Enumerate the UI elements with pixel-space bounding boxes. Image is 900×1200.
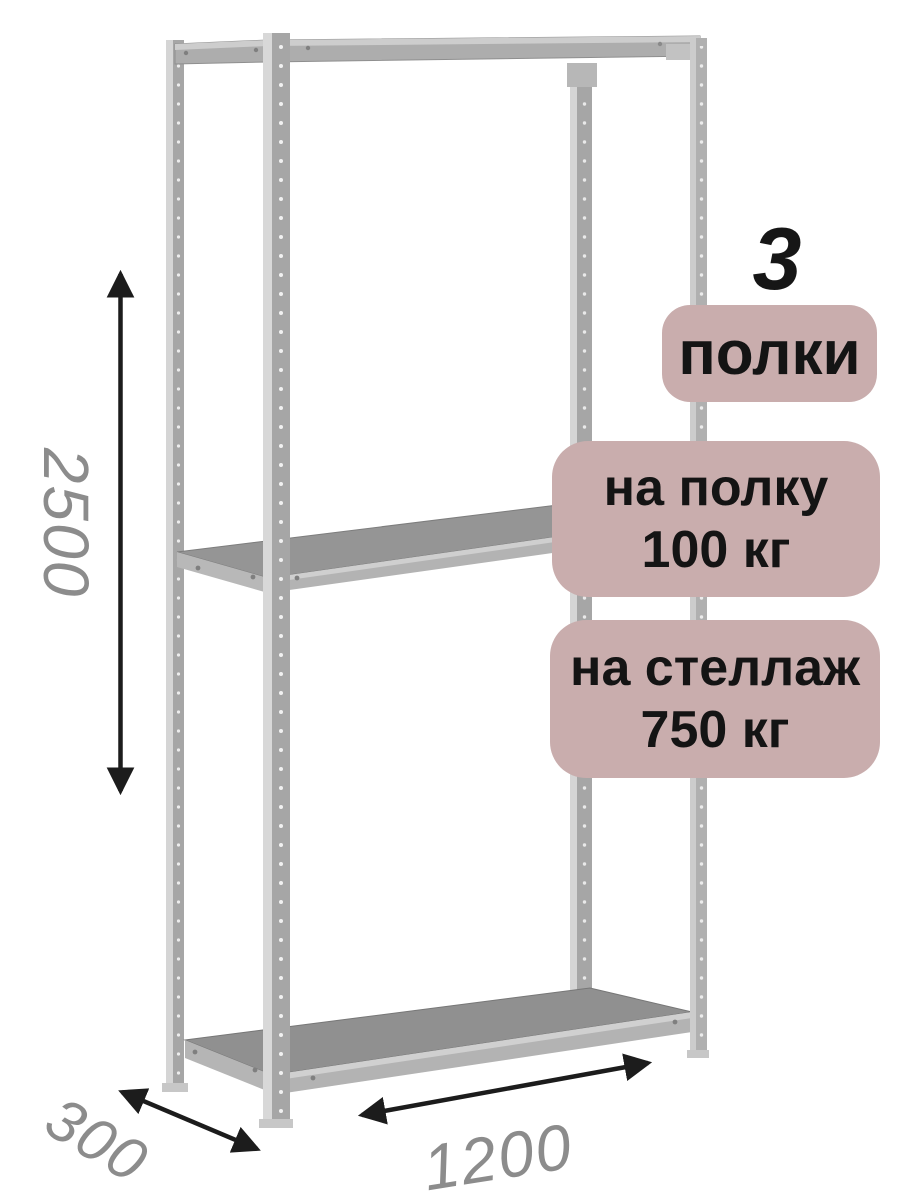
height-dimension-label: 2500 (29, 448, 103, 598)
product-image: 2500 300 1200 3 полки на полку 100 кг на… (0, 0, 900, 1200)
bracket-top-back-right (567, 63, 597, 87)
post-front-left (259, 33, 293, 1128)
shelves-badge: полки (662, 305, 877, 402)
shelf-load-line2: 100 кг (642, 519, 791, 581)
foot-back-left (162, 1083, 188, 1092)
rack-load-line1: на стеллаж (570, 637, 860, 699)
rack-load-badge: на стеллаж 750 кг (550, 620, 880, 778)
foot-front-right (687, 1050, 709, 1058)
shelf-count-number: 3 (753, 208, 802, 310)
shelf-bottom (185, 988, 692, 1095)
bracket-top-right (666, 44, 694, 60)
foot-front-left (259, 1119, 293, 1128)
shelf-load-line1: на полку (604, 457, 829, 519)
shelf-top (175, 36, 700, 64)
shelf-load-badge: на полку 100 кг (552, 441, 880, 597)
shelves-badge-label: полки (678, 318, 860, 389)
rack-load-line2: 750 кг (641, 699, 790, 761)
rack-illustration (0, 0, 900, 1200)
